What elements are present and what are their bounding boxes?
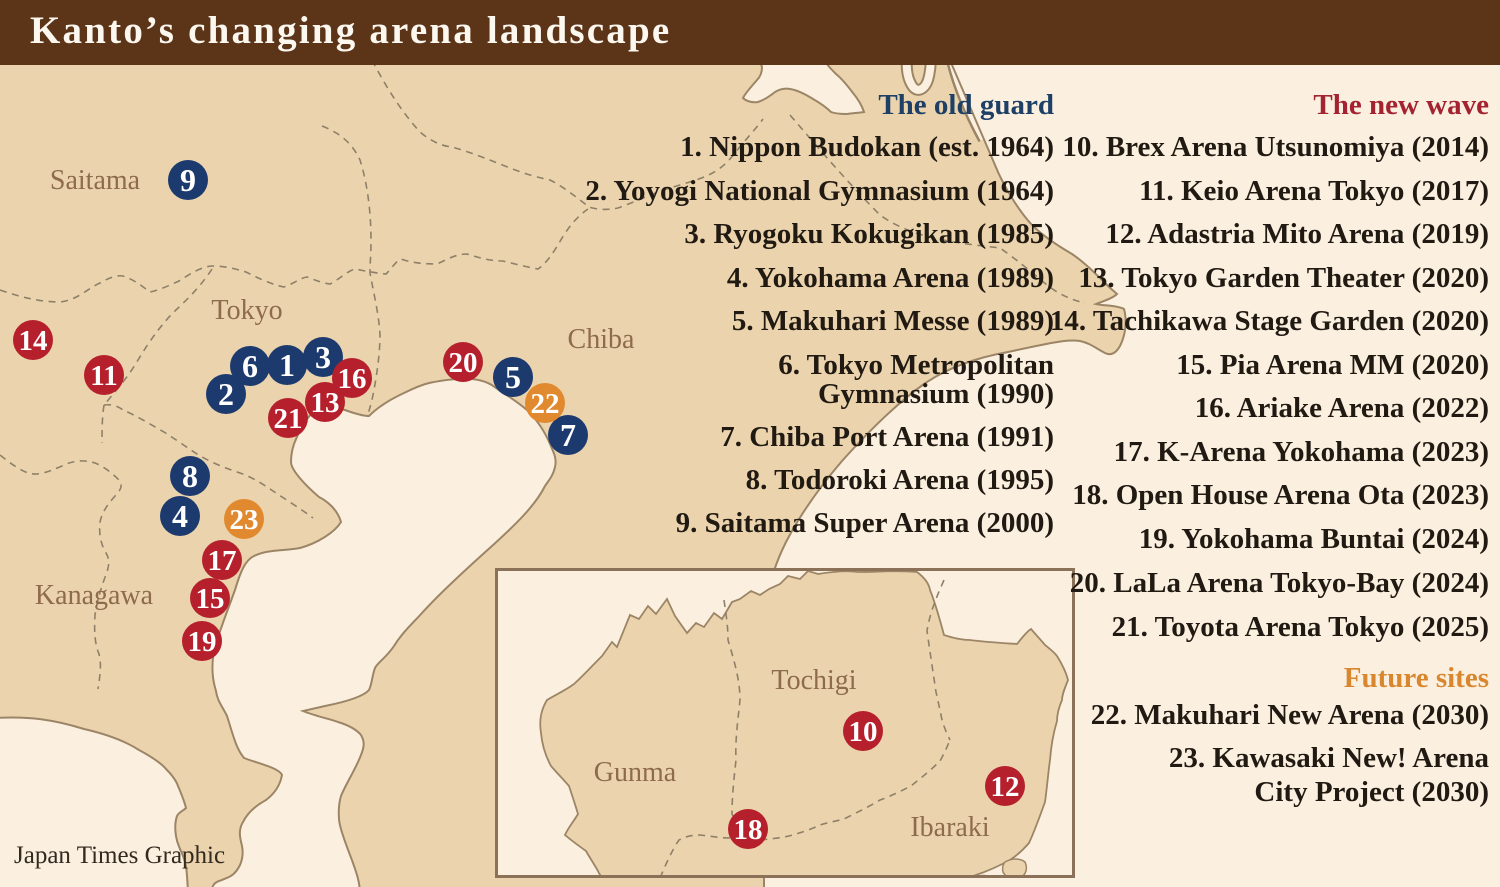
svg-text:12: 12 — [991, 771, 1020, 803]
svg-text:Ibaraki: Ibaraki — [910, 812, 990, 843]
svg-text:13: 13 — [311, 387, 340, 419]
svg-text:14: 14 — [19, 325, 48, 357]
svg-text:Tokyo: Tokyo — [211, 295, 282, 326]
svg-text:7: 7 — [560, 417, 576, 453]
svg-text:5: 5 — [505, 359, 521, 395]
svg-text:Gunma: Gunma — [594, 757, 677, 788]
svg-text:6: 6 — [242, 348, 258, 384]
svg-text:19: 19 — [188, 626, 217, 658]
svg-text:18: 18 — [734, 814, 763, 846]
svg-text:1: 1 — [279, 347, 295, 383]
svg-text:21: 21 — [274, 403, 303, 435]
svg-text:4: 4 — [172, 498, 188, 534]
svg-text:8: 8 — [182, 458, 198, 494]
svg-text:Chiba: Chiba — [568, 324, 635, 355]
svg-text:15: 15 — [196, 583, 225, 615]
svg-text:Kanagawa: Kanagawa — [35, 580, 154, 611]
svg-text:3: 3 — [315, 339, 331, 375]
svg-text:10: 10 — [849, 716, 878, 748]
svg-text:22: 22 — [531, 388, 560, 420]
svg-text:23: 23 — [230, 504, 259, 536]
svg-text:Tochigi: Tochigi — [771, 665, 856, 696]
svg-text:11: 11 — [90, 360, 117, 392]
svg-text:9: 9 — [180, 162, 196, 198]
svg-text:Saitama: Saitama — [50, 165, 141, 196]
svg-text:20: 20 — [449, 347, 478, 379]
svg-text:2: 2 — [218, 376, 234, 412]
svg-text:16: 16 — [338, 363, 367, 395]
svg-text:17: 17 — [208, 545, 237, 577]
